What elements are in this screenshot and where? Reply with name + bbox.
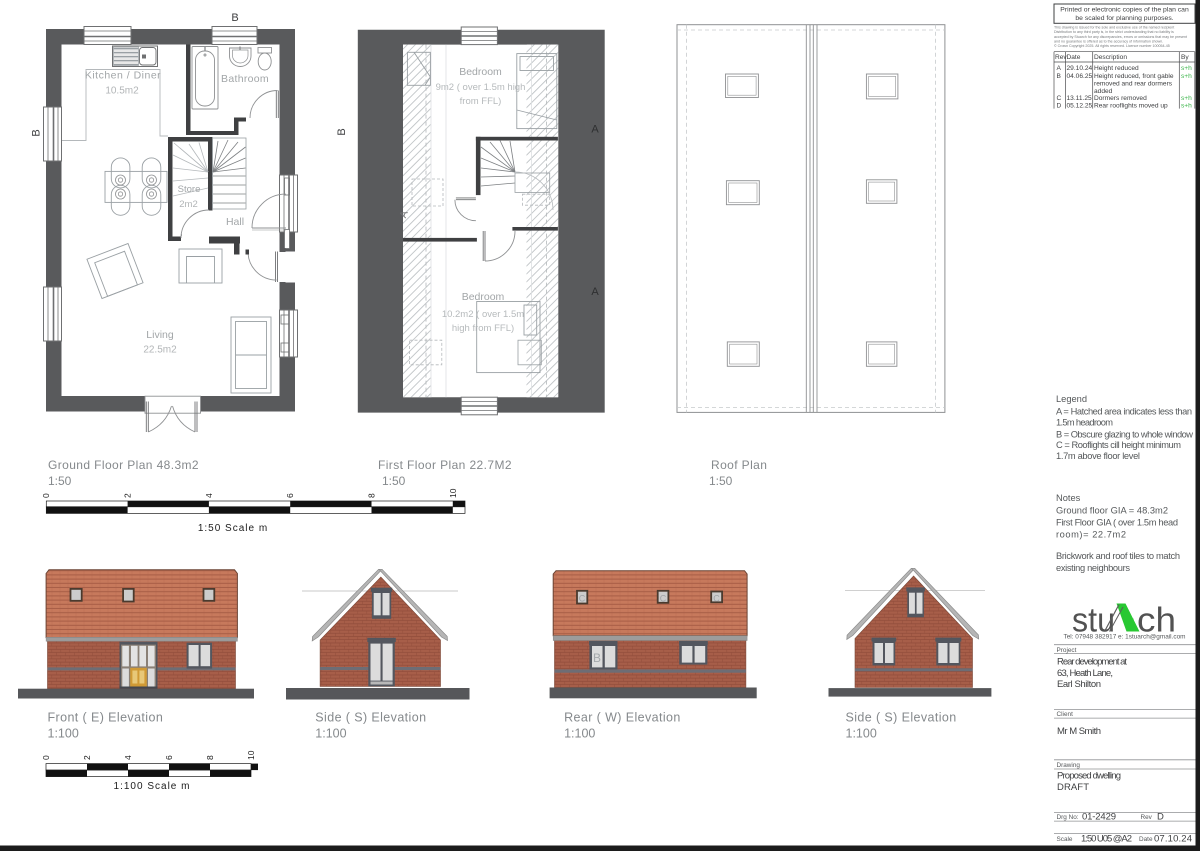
- svg-text:Bedroom: Bedroom: [459, 66, 502, 78]
- svg-text:2: 2: [82, 755, 92, 760]
- svg-text:63, Heath Lane,: 63, Heath Lane,: [1057, 668, 1113, 679]
- svg-text:10: 10: [246, 750, 256, 760]
- svg-text:This drawing is issued for the: This drawing is issued for the sole and …: [1054, 26, 1174, 30]
- svg-text:6: 6: [285, 493, 295, 498]
- svg-text:Hall: Hall: [226, 216, 244, 228]
- svg-text:Bedroom: Bedroom: [462, 291, 505, 303]
- svg-text:First Floor GIA ( over 1.5m he: First Floor GIA ( over 1.5m head: [1056, 518, 1178, 528]
- svg-text:accepted by Stuarch for any di: accepted by Stuarch for any discrepancie…: [1054, 35, 1187, 39]
- svg-text:© Crown Copyright 2025. All ri: © Crown Copyright 2025. All rights reser…: [1054, 44, 1170, 48]
- svg-text:9m2 ( over 1.5m high: 9m2 ( over 1.5m high: [436, 82, 526, 93]
- svg-text:1.5m headroom: 1.5m headroom: [1056, 418, 1113, 428]
- svg-text:0: 0: [41, 755, 51, 760]
- svg-text:Notes: Notes: [1056, 493, 1081, 503]
- svg-text:s+h: s+h: [1181, 73, 1192, 80]
- svg-text:Drawing: Drawing: [1057, 762, 1081, 769]
- svg-text:Roof Plan: Roof Plan: [711, 458, 767, 472]
- svg-text:s+h: s+h: [1181, 95, 1192, 102]
- svg-text:room)= 22.7m2: room)= 22.7m2: [1056, 530, 1126, 540]
- svg-text:D: D: [1157, 812, 1164, 823]
- svg-text:1:100 Scale m: 1:100 Scale m: [114, 781, 191, 792]
- svg-text:Store: Store: [178, 184, 201, 195]
- svg-text:1:100: 1:100: [315, 727, 346, 741]
- svg-text:Rear ( W) Elevation: Rear ( W) Elevation: [564, 711, 681, 725]
- svg-text:Legend: Legend: [1056, 394, 1087, 404]
- svg-text:2m2: 2m2: [179, 199, 197, 210]
- svg-text:Mr M Smith: Mr M Smith: [1057, 726, 1101, 737]
- svg-text:Side ( S) Elevation: Side ( S) Elevation: [315, 711, 426, 725]
- svg-text:Height reduced: Height reduced: [1094, 65, 1139, 72]
- svg-text:Dormers removed: Dormers removed: [1094, 95, 1147, 102]
- svg-text:Front ( E) Elevation: Front ( E) Elevation: [48, 711, 164, 725]
- svg-text:Description: Description: [1094, 54, 1127, 61]
- svg-text:1:100: 1:100: [846, 727, 877, 741]
- svg-text:Rear development at: Rear development at: [1057, 657, 1127, 668]
- svg-text:Living: Living: [146, 329, 174, 341]
- svg-text:s+h: s+h: [1181, 103, 1192, 110]
- svg-text:Ground floor GIA = 48.3m2: Ground floor GIA = 48.3m2: [1056, 506, 1168, 516]
- svg-text:Drg No:: Drg No:: [1057, 814, 1079, 821]
- svg-text:Ground Floor Plan 48.3m2: Ground Floor Plan 48.3m2: [48, 458, 199, 472]
- svg-text:1:50 Scale m: 1:50 Scale m: [198, 523, 268, 534]
- svg-text:C: C: [713, 594, 720, 604]
- svg-text:Brickwork and roof tiles to ma: Brickwork and roof tiles to match: [1056, 551, 1180, 561]
- svg-text:and no guarantee is offered as: and no guarantee is offered as to the ac…: [1054, 39, 1163, 43]
- svg-text:Project: Project: [1057, 647, 1077, 654]
- svg-text:Bathroom: Bathroom: [221, 73, 269, 85]
- svg-text:01-2429: 01-2429: [1082, 812, 1116, 823]
- svg-text:Distribution to any third part: Distribution to any third party is, in t…: [1054, 30, 1174, 34]
- svg-text:04.06.25: 04.06.25: [1067, 73, 1093, 80]
- svg-text:By: By: [1181, 54, 1189, 61]
- svg-text:Height reduced, front gable: Height reduced, front gable: [1094, 73, 1174, 80]
- svg-text:from FFL): from FFL): [460, 96, 502, 107]
- svg-text:C: C: [660, 594, 667, 604]
- svg-text:1.7m above floor level: 1.7m above floor level: [1056, 451, 1140, 461]
- svg-text:1:100: 1:100: [564, 727, 595, 741]
- svg-text:Proposed dwelling: Proposed dwelling: [1057, 771, 1121, 782]
- svg-text:A = Hatched area indicates le: A = Hatched area indicates less than: [1056, 407, 1192, 417]
- svg-text:removed and rear dormers: removed and rear dormers: [1094, 81, 1173, 88]
- svg-text:6: 6: [164, 755, 174, 760]
- svg-text:be scaled for planning purpose: be scaled for planning purposes.: [1075, 15, 1173, 22]
- svg-text:10: 10: [448, 488, 458, 498]
- svg-text:B: B: [231, 12, 238, 24]
- svg-text:Date: Date: [1067, 54, 1081, 61]
- svg-text:1:50 U05 @A2: 1:50 U05 @A2: [1081, 834, 1132, 845]
- svg-text:8: 8: [205, 755, 215, 760]
- svg-text:Client: Client: [1057, 711, 1074, 718]
- svg-text:A: A: [591, 124, 599, 136]
- svg-text:Printed or electronic copies o: Printed or electronic copies of the plan…: [1060, 7, 1189, 14]
- svg-text:Side ( S) Elevation: Side ( S) Elevation: [846, 711, 957, 725]
- svg-text:A: A: [1057, 65, 1062, 72]
- svg-text:B = Obscure glazing to whole: B = Obscure glazing to whole window: [1056, 430, 1193, 440]
- svg-text:C = Rooflights cill height mi: C = Rooflights cill height minimum: [1056, 440, 1181, 450]
- svg-text:Scale: Scale: [1057, 836, 1073, 843]
- svg-text:1:50: 1:50: [382, 474, 406, 488]
- svg-text:D: D: [1057, 103, 1062, 110]
- svg-text:2: 2: [123, 493, 133, 498]
- svg-text:high from FFL): high from FFL): [452, 323, 514, 334]
- svg-text:First Floor Plan 22.7M2: First Floor Plan 22.7M2: [378, 458, 512, 472]
- svg-text:Rev: Rev: [1141, 814, 1153, 821]
- svg-text:C: C: [579, 594, 586, 604]
- svg-text:B: B: [31, 129, 43, 136]
- svg-text:8: 8: [367, 493, 377, 498]
- svg-text:DRAFT: DRAFT: [1057, 782, 1089, 793]
- svg-text:B: B: [593, 651, 601, 665]
- svg-text:Date: Date: [1139, 836, 1153, 843]
- svg-text:Kitchen / Diner: Kitchen / Diner: [85, 70, 161, 82]
- svg-text:B: B: [1057, 73, 1062, 80]
- svg-text:1:50: 1:50: [48, 474, 72, 488]
- svg-text:13.11.25: 13.11.25: [1067, 95, 1093, 102]
- svg-text:B: B: [336, 128, 348, 135]
- svg-text:22.5m2: 22.5m2: [143, 345, 177, 356]
- svg-text:29.10.24: 29.10.24: [1067, 65, 1093, 72]
- svg-text:C: C: [1057, 95, 1062, 102]
- svg-text:10.5m2: 10.5m2: [105, 86, 139, 97]
- svg-text:Tel: 07948 382917 e: 1stuarch: Tel: 07948 382917 e: 1stuarch@gmail.com: [1064, 634, 1186, 641]
- svg-text:added: added: [1094, 88, 1113, 95]
- svg-text:1:100: 1:100: [48, 727, 79, 741]
- svg-text:Rear rooflights moved up: Rear rooflights moved up: [1094, 103, 1168, 110]
- svg-text:existing neighbours: existing neighbours: [1056, 563, 1130, 573]
- svg-text:4: 4: [204, 493, 214, 498]
- svg-text:07.10.24: 07.10.24: [1154, 834, 1192, 845]
- svg-text:0: 0: [41, 493, 51, 498]
- svg-text:s+h: s+h: [1181, 65, 1192, 72]
- svg-text:Earl Shilton: Earl Shilton: [1057, 679, 1101, 690]
- svg-text:10.2m2 ( over 1.5m: 10.2m2 ( over 1.5m: [442, 309, 524, 320]
- svg-text:4: 4: [123, 755, 133, 760]
- svg-text:A: A: [591, 286, 599, 298]
- svg-text:05.12.25: 05.12.25: [1067, 103, 1093, 110]
- svg-text:1:50: 1:50: [709, 474, 733, 488]
